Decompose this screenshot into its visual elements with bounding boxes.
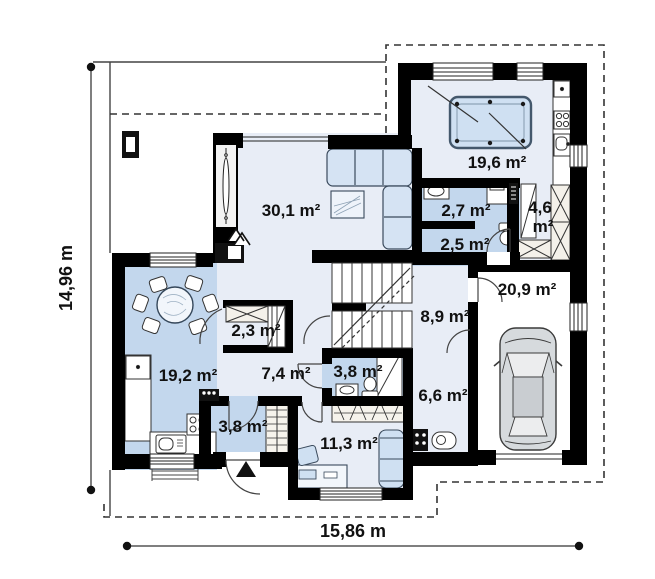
room-label-wardrobe-line1: 4,6 [528,198,552,217]
terrace-door [216,145,236,227]
window [150,253,196,267]
window [433,63,493,80]
sink2-icon [156,435,186,453]
window [517,63,543,80]
coffee-table-icon [331,191,364,218]
stove-icon [554,111,570,129]
room-label-wardrobe-line2: m² [533,217,554,236]
vanity2-icon [336,384,358,397]
room-label-utility: 6,6 m² [418,386,467,405]
room-label-stair-hall: 8,9 m² [420,307,469,326]
floor-plan-drawing: 30,1 m² 19,6 m² 2,7 m² 2,5 m² 4,6 m² 20,… [0,0,655,579]
room-label-bathroom: 2,7 m² [441,201,490,220]
room-label-bathroom-2: 3,8 m² [333,362,382,381]
coat-closet-icon [266,403,288,453]
width-dimension-label: 15,86 m [320,521,386,541]
sink-icon [554,134,570,156]
floor-plan: 30,1 m² 19,6 m² 2,7 m² 2,5 m² 4,6 m² 20,… [0,0,655,579]
room-label-study: 11,3 m² [320,434,378,453]
room-label-dining-room: 19,2 m² [159,366,218,385]
window [320,488,382,500]
hanger-rail-icon [332,404,404,422]
small-sofa-icon [379,430,404,488]
room-label-wc: 2,5 m² [440,235,489,254]
window [150,454,194,469]
exterior-steps-icon [152,469,198,481]
room-label-kitchen: 19,6 m² [468,153,527,172]
window [570,145,587,167]
dimension-bottom [123,542,583,550]
kitchen-counter-icon [553,80,571,186]
room-label-hallway: 7,4 m² [261,364,310,383]
window [570,303,587,331]
room-label-garage: 20,9 m² [498,280,557,299]
room-label-living-room: 30,1 m² [262,201,321,220]
room-label-entry: 3,8 m² [218,417,267,436]
radiator-icon [199,389,219,401]
dimension-left [87,63,95,494]
car-icon [494,328,562,450]
chimney-icon [122,131,139,158]
garage-door [496,454,562,459]
height-dimension-label: 14,96 m [56,245,76,311]
room-label-closet: 2,3 m² [231,321,280,340]
shelf-icon [509,183,518,204]
